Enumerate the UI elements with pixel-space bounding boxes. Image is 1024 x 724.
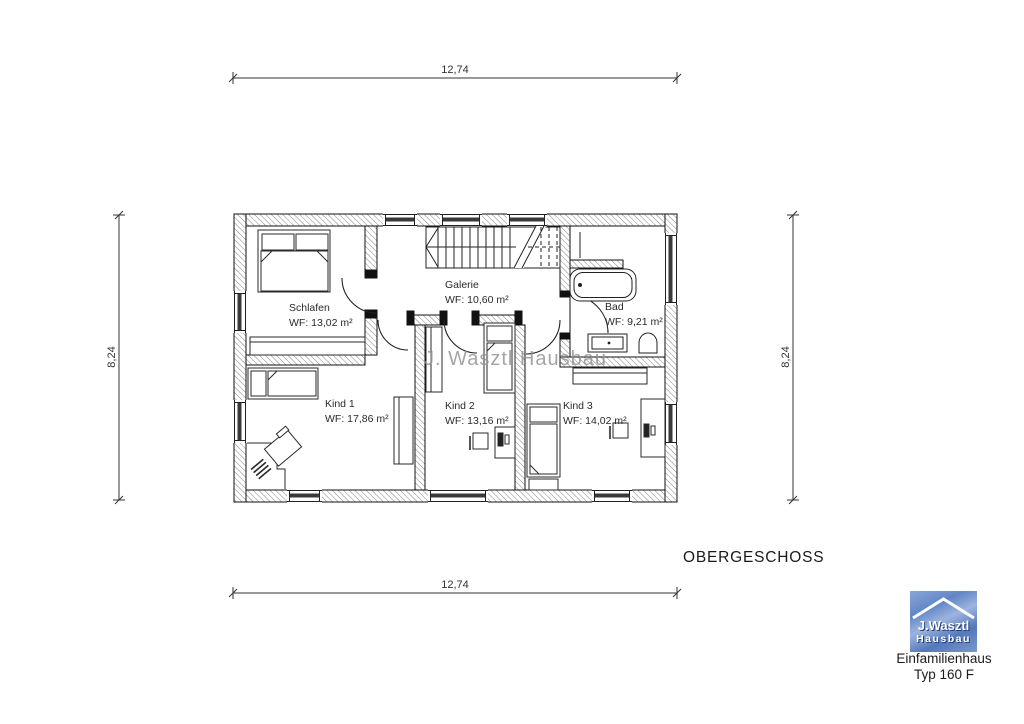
chair xyxy=(251,459,271,478)
furniture-kind2 xyxy=(426,323,515,458)
caption-line-1: Einfamilienhaus xyxy=(884,651,1004,667)
room-name: Galerie xyxy=(445,278,509,293)
furniture-kind1 xyxy=(247,368,413,489)
floor-plan-page: 12,74 12,74 8,24 8,24 Schlafen WF: 13,02… xyxy=(0,0,1024,724)
computer xyxy=(644,424,649,437)
floor-title: OBERGESCHOSS xyxy=(683,549,824,567)
logo-text-1: J.Wasztl xyxy=(910,618,977,633)
bathroom-fixtures xyxy=(570,232,657,353)
room-area: WF: 14,02 m² xyxy=(563,414,627,429)
room-label-kind3: Kind 3 WF: 14,02 m² xyxy=(563,399,627,429)
room-label-kind2: Kind 2 WF: 13,16 m² xyxy=(445,399,509,429)
plan-caption: Einfamilienhaus Typ 160 F xyxy=(884,651,1004,683)
toilet xyxy=(639,333,657,353)
wardrobe xyxy=(394,397,413,464)
dimension-bottom: 12,74 xyxy=(233,579,677,591)
dimension-lines xyxy=(113,72,799,599)
room-label-kind1: Kind 1 WF: 17,86 m² xyxy=(325,397,389,427)
wardrobe xyxy=(250,337,365,355)
dimension-left: 8,24 xyxy=(106,337,118,377)
dimension-top: 12,74 xyxy=(233,64,677,76)
stairs xyxy=(426,226,560,268)
room-name: Kind 1 xyxy=(325,397,389,412)
room-area: WF: 13,02 m² xyxy=(289,316,353,331)
watermark: J. Wasztl Hausbau xyxy=(424,348,607,371)
room-area: WF: 9,21 m² xyxy=(605,315,663,330)
room-name: Schlafen xyxy=(289,301,353,316)
room-name: Kind 2 xyxy=(445,399,509,414)
caption-line-2: Typ 160 F xyxy=(884,667,1004,683)
dimension-right: 8,24 xyxy=(780,337,792,377)
company-logo: J.Wasztl Hausbau xyxy=(910,591,977,652)
room-name: Bad xyxy=(605,300,663,315)
furniture-schlafen xyxy=(250,230,365,355)
room-name: Kind 3 xyxy=(563,399,627,414)
room-label-schlafen: Schlafen WF: 13,02 m² xyxy=(289,301,353,331)
room-label-galerie: Galerie WF: 10,60 m² xyxy=(445,278,509,308)
chair xyxy=(473,433,488,449)
room-label-bad: Bad WF: 9,21 m² xyxy=(605,300,663,330)
logo-text-2: Hausbau xyxy=(910,633,977,645)
room-area: WF: 10,60 m² xyxy=(445,293,509,308)
furniture-kind3 xyxy=(527,368,665,490)
bathtub-faucet xyxy=(578,283,582,287)
room-area: WF: 17,86 m² xyxy=(325,412,389,427)
room-area: WF: 13,16 m² xyxy=(445,414,509,429)
desk xyxy=(262,426,302,466)
computer xyxy=(498,433,503,446)
